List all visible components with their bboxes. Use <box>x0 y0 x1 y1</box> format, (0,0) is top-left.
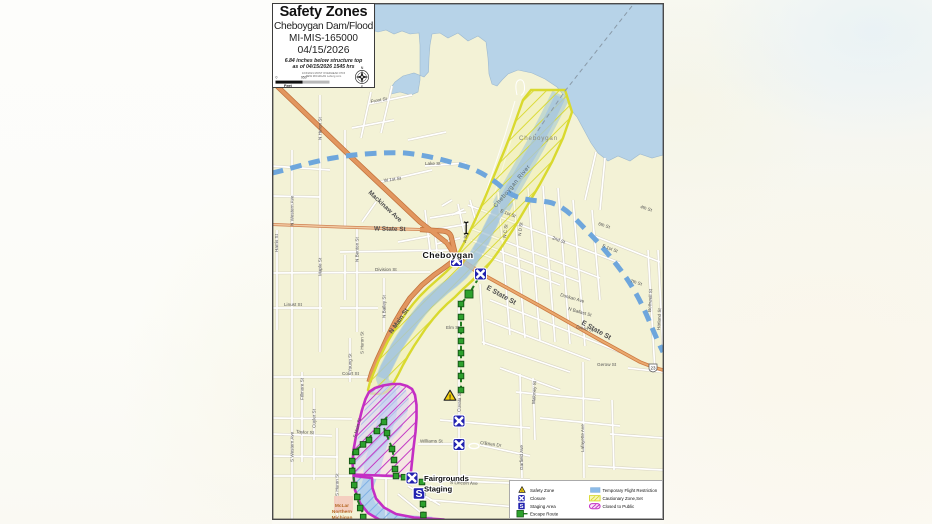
svg-text:Safety Zone: Safety Zone <box>530 488 555 493</box>
svg-text:!: ! <box>449 394 451 401</box>
svg-text:N Huron St: N Huron St <box>318 117 323 140</box>
svg-text:Cautionary Zone,Set: Cautionary Zone,Set <box>603 496 644 501</box>
svg-text:S: S <box>361 85 364 87</box>
svg-text:Garfield Ave: Garfield Ave <box>519 445 524 470</box>
svg-text:Lake St: Lake St <box>425 161 441 166</box>
svg-text:S Western Ave: S Western Ave <box>290 431 295 462</box>
svg-text:S: S <box>520 504 524 510</box>
svg-text:Gerow St: Gerow St <box>597 362 617 367</box>
svg-text:Closed to Public: Closed to Public <box>603 504 636 509</box>
svg-text:Division St: Division St <box>375 267 397 272</box>
svg-text:Fillmore St: Fillmore St <box>300 377 305 400</box>
svg-text:S Huron St: S Huron St <box>335 473 340 496</box>
svg-text:Cheboygan: Cheboygan <box>423 250 474 260</box>
svg-text:Escape Route: Escape Route <box>530 512 559 517</box>
svg-text:!: ! <box>521 489 522 493</box>
svg-text:Temporary Flight Restriction: Temporary Flight Restriction <box>603 488 658 493</box>
svg-text:Court St: Court St <box>342 371 360 376</box>
svg-text:Linust St: Linust St <box>284 302 303 307</box>
svg-text:Staging Area: Staging Area <box>530 504 556 509</box>
svg-text:Feet: Feet <box>284 84 293 87</box>
svg-text:S: S <box>415 488 422 500</box>
svg-text:Cheboygan: Cheboygan <box>519 135 558 142</box>
svg-text:Cuvala St: Cuvala St <box>457 391 463 412</box>
svg-text:N: N <box>361 66 364 70</box>
svg-text:McLar: McLar <box>335 503 349 509</box>
svg-text:Lafayette Ave: Lafayette Ave <box>580 424 585 452</box>
svg-text:Williams St: Williams St <box>420 439 443 444</box>
svg-text:N Bailey St: N Bailey St <box>382 295 387 318</box>
svg-text:Elm St: Elm St <box>446 325 460 330</box>
svg-text:Harris St: Harris St <box>274 233 279 252</box>
svg-text:Staging: Staging <box>424 485 452 494</box>
svg-text:Northern: Northern <box>332 509 352 515</box>
svg-text:N Western Ave: N Western Ave <box>290 195 295 226</box>
svg-text:S Huron St: S Huron St <box>360 331 365 354</box>
svg-text:S Lincoln Ave: S Lincoln Ave <box>450 480 478 486</box>
svg-text:23: 23 <box>650 366 656 371</box>
svg-text:950: 950 <box>301 76 307 80</box>
svg-text:Cuyler St: Cuyler St <box>312 408 317 428</box>
svg-text:Closure: Closure <box>530 496 546 501</box>
svg-text:N Benton St: N Benton St <box>355 237 360 262</box>
svg-text:0: 0 <box>276 76 278 80</box>
svg-text:Young St: Young St <box>348 353 353 372</box>
svg-text:W State St: W State St <box>374 226 407 234</box>
svg-text:Maple St: Maple St <box>318 257 323 276</box>
